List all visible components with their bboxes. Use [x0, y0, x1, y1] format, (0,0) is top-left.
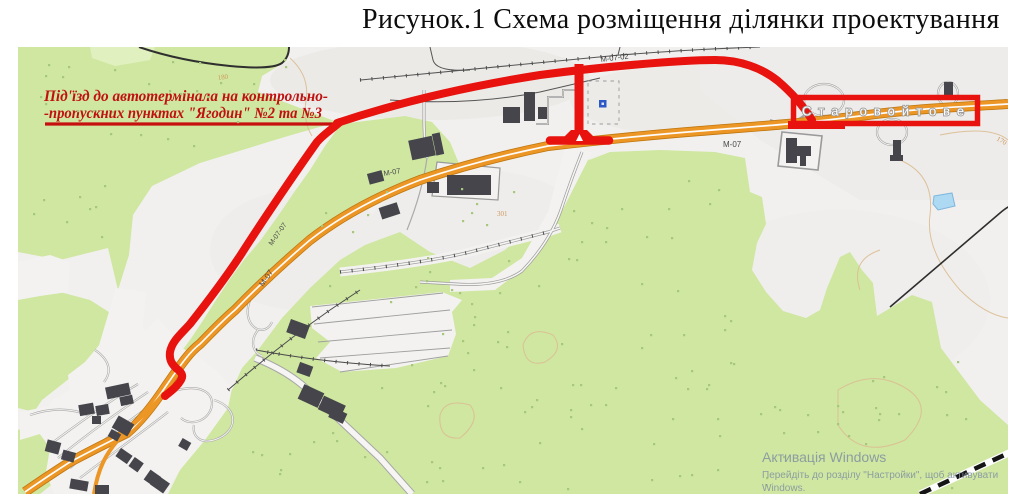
svg-text:-пропускних пунктах "Ягодин" №: -пропускних пунктах "Ягодин" №2 та №3: [44, 105, 322, 122]
svg-text:М-07: М-07: [723, 140, 742, 149]
svg-text:Старовойтове: Старовойтове: [802, 104, 971, 119]
svg-text:Активація Windows: Активація Windows: [762, 449, 886, 465]
svg-text:Під'їзд до автотермінала на ко: Під'їзд до автотермінала на контрольно-: [43, 88, 328, 105]
svg-text:180: 180: [217, 73, 229, 82]
svg-text:Перейдіть до розділу "Настройк: Перейдіть до розділу "Настройки", щоб ак…: [762, 469, 998, 481]
svg-text:Windows.: Windows.: [762, 483, 805, 494]
svg-text:301: 301: [497, 210, 508, 218]
